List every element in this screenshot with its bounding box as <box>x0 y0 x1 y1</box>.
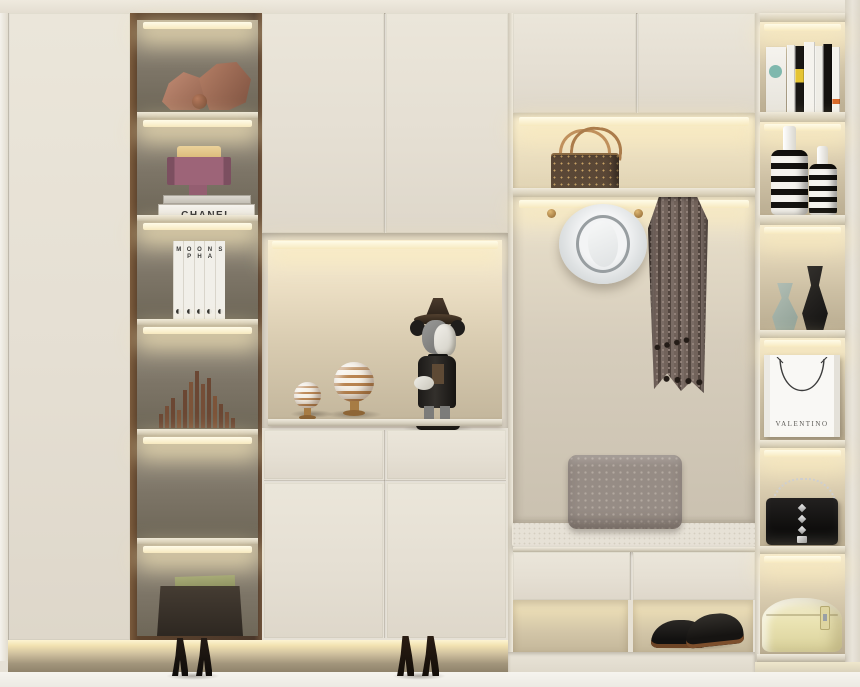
bench-drawer-left <box>513 552 630 600</box>
dress-shoe <box>683 611 744 649</box>
door-seam <box>636 13 638 113</box>
shelf-light <box>764 24 841 31</box>
door-seam <box>384 430 386 638</box>
purse-sculpture-tab <box>189 185 207 195</box>
figurine-glove-hand <box>414 376 434 390</box>
monogram-bag-body <box>551 153 619 190</box>
hall-upper-door-left <box>513 13 636 113</box>
middle-upper-door-right <box>386 13 508 233</box>
skyline-bar <box>189 382 193 428</box>
display-cell <box>137 435 258 538</box>
studded-clutch-body <box>766 498 838 545</box>
glass-display-column: CHANEL THE VOCABULARY OF STYLE CHANEL M <box>130 13 262 642</box>
rockstud <box>798 504 806 512</box>
spine-letter: S <box>216 247 225 254</box>
striped-orb-large <box>334 362 374 402</box>
bench-drawer-right <box>633 552 755 600</box>
shelf-board <box>760 546 845 554</box>
high-heel-shoe <box>422 636 439 676</box>
bench-cubby-left <box>513 600 628 652</box>
middle-lower-door-right <box>387 483 506 638</box>
bench-cushion <box>512 521 756 547</box>
display-cell <box>137 544 258 636</box>
skyline-bar <box>177 410 181 428</box>
shelf-light <box>764 556 841 563</box>
left-wardrobe-door <box>8 13 130 640</box>
right-side-panel <box>845 0 860 687</box>
high-heels-pair <box>392 636 446 680</box>
book-front-cover <box>766 47 786 112</box>
open-shelf-cell <box>760 122 845 215</box>
clasp-metal <box>823 614 827 621</box>
niche-floor <box>268 419 502 426</box>
shelf-light <box>764 227 841 234</box>
hall-upper-door-right <box>638 13 755 113</box>
moon-phase-icon <box>218 309 223 314</box>
purse-sculpture-body <box>167 157 231 185</box>
skyline-bar <box>213 396 217 428</box>
bag-string-handle <box>764 357 840 407</box>
valentino-paper-bag: VALENTINO <box>764 355 840 437</box>
rockstud <box>798 526 806 534</box>
spine-letter: O <box>195 247 204 254</box>
moon-phase-icon <box>176 309 181 314</box>
high-heel-shoe <box>172 638 188 676</box>
striped-orb-small <box>294 382 321 409</box>
striped-vase-neck <box>783 126 796 152</box>
open-shelf-cell <box>760 22 845 112</box>
skyline-bar <box>219 404 223 428</box>
hanging-niche <box>513 197 755 523</box>
figurine-glove-face <box>434 324 456 356</box>
skyline-bar <box>165 406 169 428</box>
open-shelf-cell: VALENTINO <box>760 338 845 440</box>
skyline-bar <box>159 414 163 428</box>
book-spine: O P <box>183 241 193 319</box>
striped-vase-body <box>809 164 837 215</box>
glass-column-interior: CHANEL THE VOCABULARY OF STYLE CHANEL M <box>137 20 258 636</box>
bag-shelf-niche <box>513 113 755 190</box>
sage-vase <box>771 283 799 330</box>
wall-hook <box>547 209 556 218</box>
shelf-light <box>143 437 252 444</box>
bench-pillow <box>568 455 682 529</box>
book-spine: S <box>215 241 225 319</box>
spine-letter: A <box>205 254 214 261</box>
skyline-bar <box>195 371 199 428</box>
spine-letter: H <box>195 254 204 261</box>
book-spine <box>787 45 795 112</box>
shelf-light <box>143 223 252 230</box>
book-spine <box>832 47 840 112</box>
book-spine: N A <box>204 241 214 319</box>
open-shelf-cell <box>760 554 845 654</box>
middle-drawer-right <box>387 430 506 479</box>
hat-box <box>762 598 842 652</box>
shelf-light <box>764 450 841 457</box>
right-column-top-board <box>760 13 845 22</box>
middle-drawer-left <box>264 430 383 479</box>
skyline-bar <box>201 384 205 428</box>
rockstud <box>798 515 806 523</box>
orb-stand-base <box>343 410 365 416</box>
middle-niche-interior <box>268 240 502 421</box>
clutch-clasp <box>797 536 807 543</box>
shelf-board <box>760 440 845 448</box>
high-heels-pair <box>166 638 220 680</box>
shelf-light <box>519 117 749 126</box>
striped-vase-body <box>771 150 808 215</box>
valentino-text: VALENTINO <box>775 420 828 428</box>
shelf-light <box>143 22 252 29</box>
middle-upper-door-left <box>262 13 384 233</box>
storage-basket <box>157 586 243 636</box>
display-cell: M O P O H N <box>137 221 258 319</box>
bag-shelf-board <box>513 188 755 197</box>
shelf-board <box>760 215 845 225</box>
hatbox-clasp <box>820 606 830 630</box>
open-shelf-cell <box>760 225 845 330</box>
door-seam <box>384 13 386 233</box>
shelf-board <box>760 112 845 122</box>
display-cell <box>137 20 258 112</box>
skyline-bar <box>225 412 229 428</box>
moon-books-set: M O P O H N <box>173 241 225 319</box>
black-vase <box>801 266 829 330</box>
spine-letter: O <box>184 247 193 254</box>
spine-letter: P <box>184 254 193 261</box>
skyline-bar <box>231 418 235 428</box>
right-column-bottom-board <box>757 654 845 662</box>
open-shelf-cell <box>760 448 845 546</box>
moon-phase-icon <box>197 309 202 314</box>
book-cover-circle <box>769 65 782 78</box>
book-spine: O H <box>194 241 204 319</box>
fedora-hat <box>559 204 647 284</box>
shelf-light <box>764 340 841 347</box>
book-spine <box>804 42 815 112</box>
striped-vase-neck <box>817 146 828 166</box>
moon-phase-icon <box>207 309 212 314</box>
valentino-logo: VALENTINO <box>764 413 840 431</box>
wardrobe-scene: CHANEL THE VOCABULARY OF STYLE CHANEL M <box>0 0 860 687</box>
skyline-bar <box>171 398 175 428</box>
toy-figurine <box>406 298 468 430</box>
book-spine <box>795 46 804 112</box>
drawer-seam <box>630 552 632 600</box>
skyline-bar <box>207 378 211 428</box>
spine-letter: N <box>205 247 214 254</box>
stone-sphere <box>192 94 207 109</box>
spine-letter: M <box>174 247 183 254</box>
book-spine: M <box>173 241 183 319</box>
book-spine <box>823 44 832 112</box>
door-seam <box>8 13 10 640</box>
moon-phase-icon <box>187 309 192 314</box>
shelf-light <box>143 120 252 127</box>
chanel-book-thin: CHANEL THE VOCABULARY OF STYLE <box>163 195 251 204</box>
display-cell <box>137 325 258 429</box>
wood-skyline-sculpture <box>159 371 239 428</box>
middle-niche-frame <box>262 233 508 428</box>
high-heel-shoe <box>196 638 212 676</box>
crown-strip <box>0 0 860 14</box>
niche-light <box>272 241 498 249</box>
middle-lower-door-left <box>264 483 383 638</box>
skyline-bar <box>183 390 187 428</box>
high-heel-shoe <box>397 636 414 676</box>
bench-cubby-right <box>633 600 753 652</box>
shelf-light <box>143 327 252 334</box>
bench-plinth <box>508 652 755 674</box>
display-cell: CHANEL THE VOCABULARY OF STYLE CHANEL <box>137 118 258 215</box>
shelf-light <box>143 546 252 553</box>
shelf-light <box>764 124 841 131</box>
left-side-panel <box>0 13 8 661</box>
shelf-board <box>760 330 845 338</box>
scarf <box>648 197 708 393</box>
book-spine <box>815 46 823 112</box>
